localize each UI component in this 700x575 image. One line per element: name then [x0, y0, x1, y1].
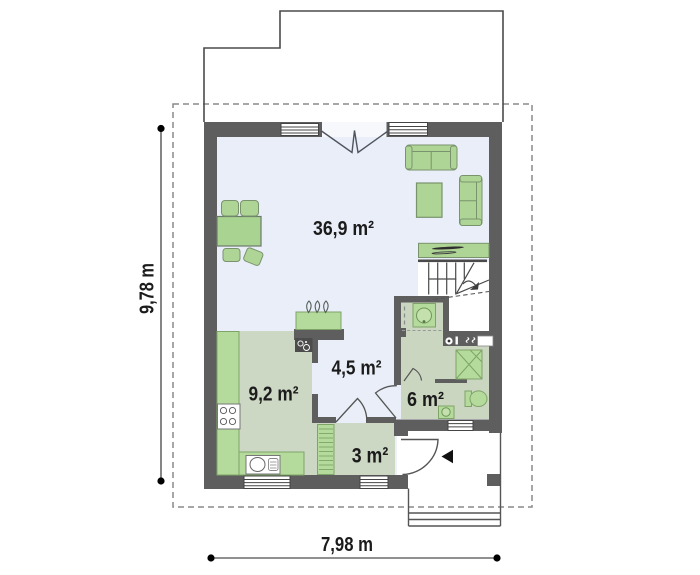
svg-text:7,98 m: 7,98 m: [321, 534, 373, 556]
svg-text:36,9 m²: 36,9 m²: [313, 217, 374, 240]
svg-text:4,5 m²: 4,5 m²: [332, 357, 382, 380]
svg-text:9,78 m: 9,78 m: [137, 263, 159, 314]
svg-text:6 m²: 6 m²: [407, 388, 444, 411]
svg-text:3 m²: 3 m²: [352, 444, 389, 468]
svg-text:9,2 m²: 9,2 m²: [249, 383, 299, 406]
